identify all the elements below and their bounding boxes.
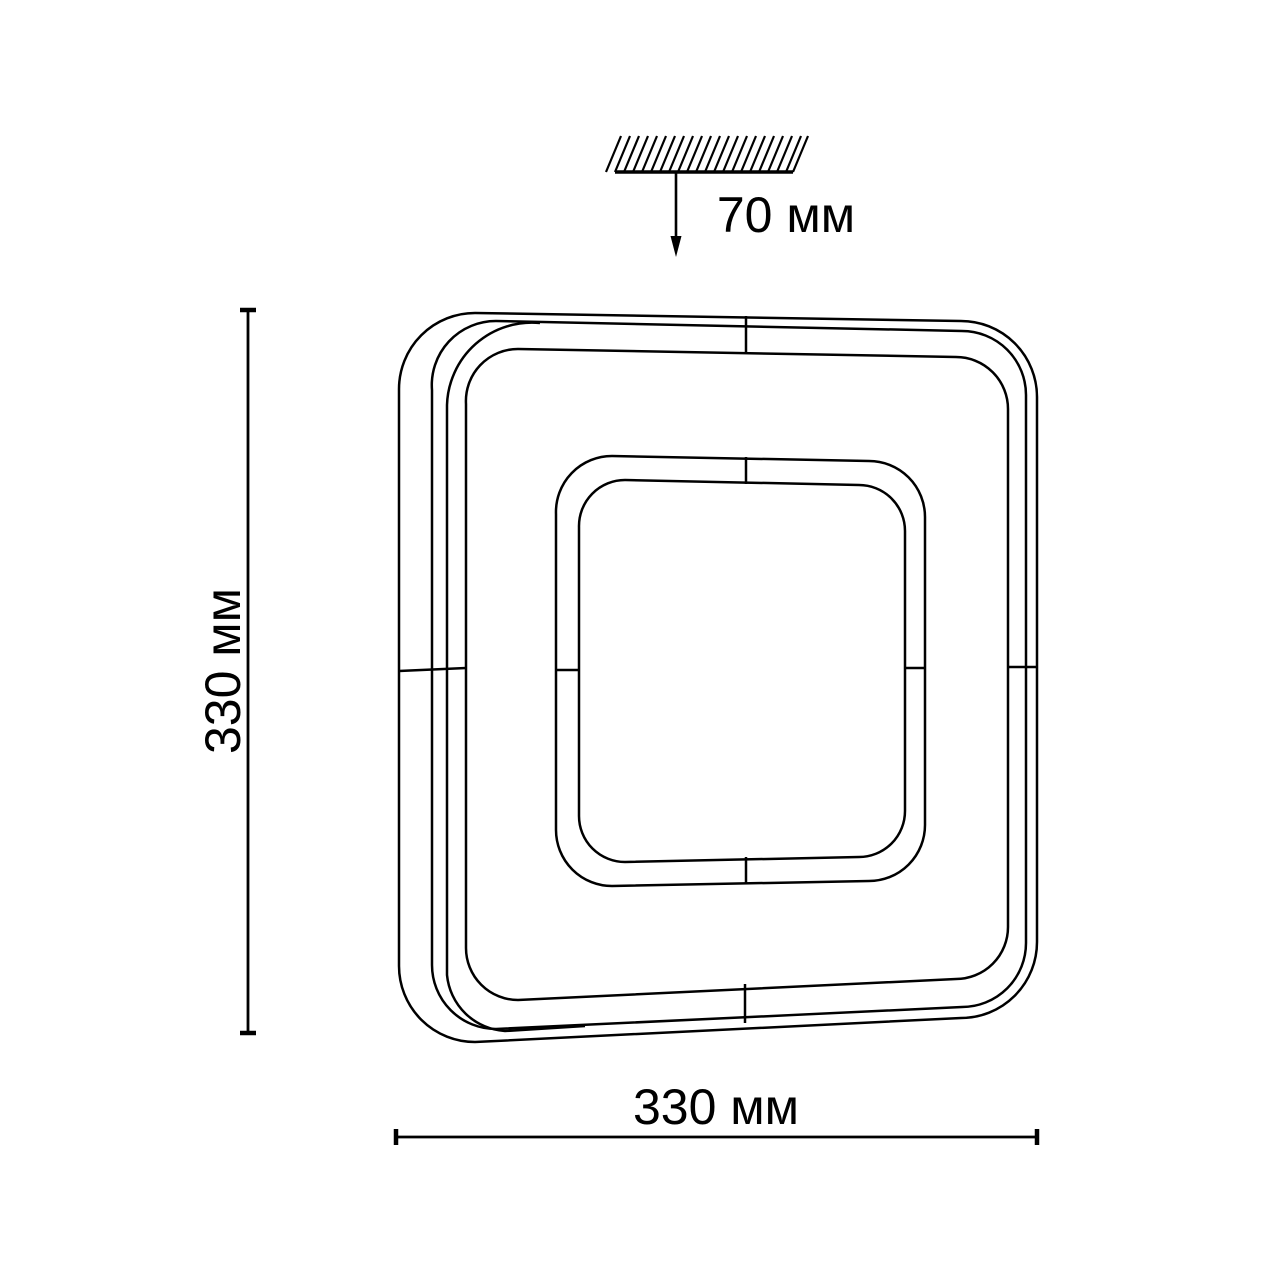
inner-square-inner-outline <box>579 480 905 862</box>
fixture-drawing <box>399 313 1037 1042</box>
arrow-head <box>671 236 682 257</box>
inner-square-outer-outline <box>556 456 925 886</box>
fixture-width-label: 330 мм <box>633 1079 799 1135</box>
outer-left-rim-contour <box>447 323 585 1031</box>
outer-silhouette-outline <box>399 313 1037 1042</box>
outer-left-seam <box>399 668 466 671</box>
ceiling-hatch-icon <box>606 136 808 172</box>
outer-rim-inner-outline <box>466 349 1008 1000</box>
ceiling-light-dimension-drawing: 70 мм <box>0 0 1280 1280</box>
height-dimension: 330 мм <box>195 310 256 1033</box>
fixture-height-label: 330 мм <box>195 588 251 754</box>
mount-distance-arrow-icon <box>671 172 682 257</box>
outer-front-edge-outline <box>432 321 1026 1029</box>
mount-height-label: 70 мм <box>717 187 855 243</box>
segment-seam-lines <box>399 316 1037 1023</box>
hatch-marks <box>606 136 808 172</box>
technical-drawing-page: 70 мм <box>0 0 1280 1280</box>
width-dimension: 330 мм <box>396 1079 1037 1145</box>
